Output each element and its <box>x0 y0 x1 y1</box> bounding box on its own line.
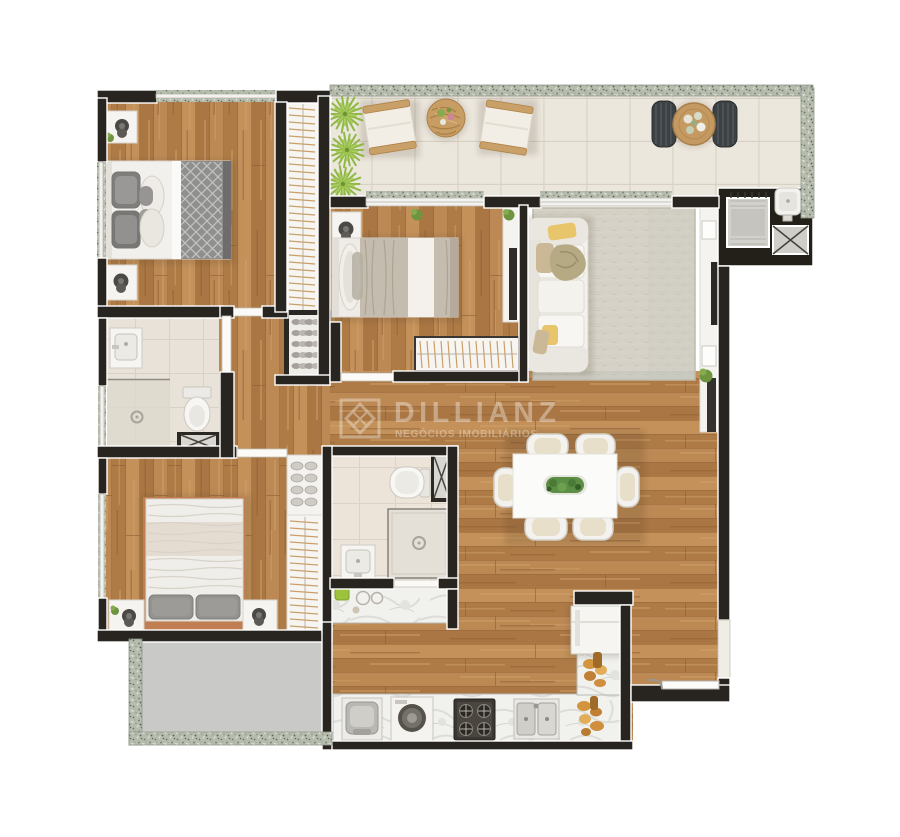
svg-text:NEGÓCIOS IMOBILIÁRIOS: NEGÓCIOS IMOBILIÁRIOS <box>395 427 538 440</box>
svg-text:DILLIANZ: DILLIANZ <box>394 397 561 429</box>
